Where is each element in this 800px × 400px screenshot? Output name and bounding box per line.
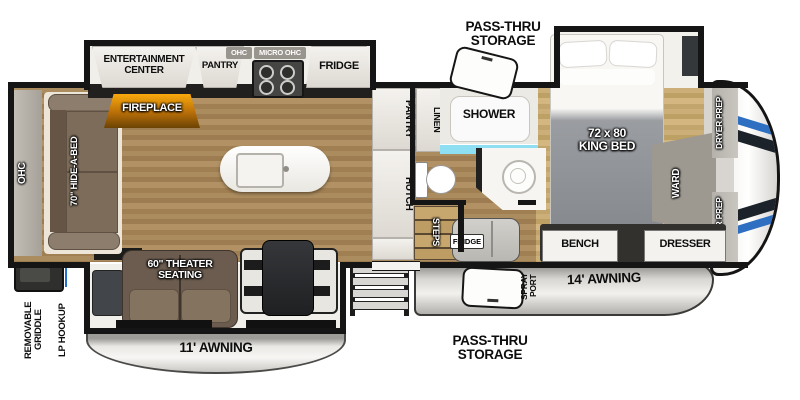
micro-ohc-label: MICRO OHC [254, 47, 306, 59]
rv-floorplan: WILDCAT 11' AWNING SPRAY PORT 14' AWNING… [0, 0, 800, 400]
fridge-cabinet: FRIDGE [306, 46, 372, 88]
hutch: HUTCH [372, 150, 414, 238]
theater-seating-label: 60" THEATER SEATING [125, 259, 235, 281]
shower: SHOWER [440, 88, 538, 152]
pass-thru-top-label: PASS-THRU STORAGE [444, 20, 562, 48]
exterior-fridge-label: FRIDGE [450, 234, 484, 249]
awning-main-label: 14' AWNING [548, 270, 660, 288]
dinette-table [262, 240, 314, 316]
theater-seating: 60" THEATER SEATING [122, 250, 238, 328]
ward-label: WARD [672, 142, 696, 224]
entertainment-center-label: ENTERTAINMENT CENTER [93, 55, 195, 76]
awning-rear-label: 11' AWNING [88, 341, 344, 355]
pantry-label: PANTRY [197, 61, 243, 71]
linen-label: LINEN [417, 89, 441, 151]
fridge-label: FRIDGE [307, 61, 371, 73]
living-slide-window-icon [92, 270, 124, 316]
pantry-tall-label: PANTRY [373, 89, 413, 149]
stove-icon [252, 60, 304, 98]
rear-ohc-label: OHC [18, 90, 38, 256]
dryer-prep: DRYER PREP [712, 88, 738, 158]
ward-cabinet: WARD [652, 130, 716, 236]
kitchen-island [220, 146, 330, 192]
entry-door-icon [372, 261, 420, 271]
toilet-icon [415, 160, 457, 198]
hide-a-bed-label: 70" HIDE-A-BED [70, 110, 110, 232]
king-bed: 72 x 80 KING BED [550, 34, 664, 240]
king-bed-label: 72 x 80 KING BED [557, 127, 657, 152]
pantry-tall: PANTRY [372, 88, 414, 150]
micro-ohc-text: MICRO OHC [259, 48, 301, 57]
nightstand [682, 36, 698, 76]
bench: BENCH [542, 230, 618, 262]
fireplace-label: FIREPLACE [106, 103, 198, 115]
pass-thru-bottom-label: PASS-THRU STORAGE [428, 334, 552, 362]
steps-label: STEPS [424, 206, 440, 258]
spray-port-label: SPRAY PORT [520, 263, 546, 309]
removable-griddle-label: REMOVABLE GRIDDLE [24, 290, 60, 370]
entertainment-center: ENTERTAINMENT CENTER [92, 46, 196, 88]
lp-hookup-label: LP HOOKUP [58, 290, 78, 370]
hutch-label: HUTCH [373, 151, 413, 237]
ohc-label: OHC [226, 47, 252, 59]
bench-label: BENCH [543, 239, 617, 251]
linen-closet: LINEN [416, 88, 442, 152]
dryer-prep-label: DRYER PREP [715, 88, 735, 158]
dresser-label: DRESSER [645, 239, 725, 251]
sink-icon [236, 153, 284, 188]
dresser: DRESSER [644, 230, 726, 262]
awning-rear: 11' AWNING [86, 332, 346, 374]
storage-door-icon [461, 266, 525, 309]
ohc-text: OHC [231, 48, 247, 57]
rear-ohc: OHC [14, 90, 42, 256]
shower-label: SHOWER [452, 108, 526, 121]
